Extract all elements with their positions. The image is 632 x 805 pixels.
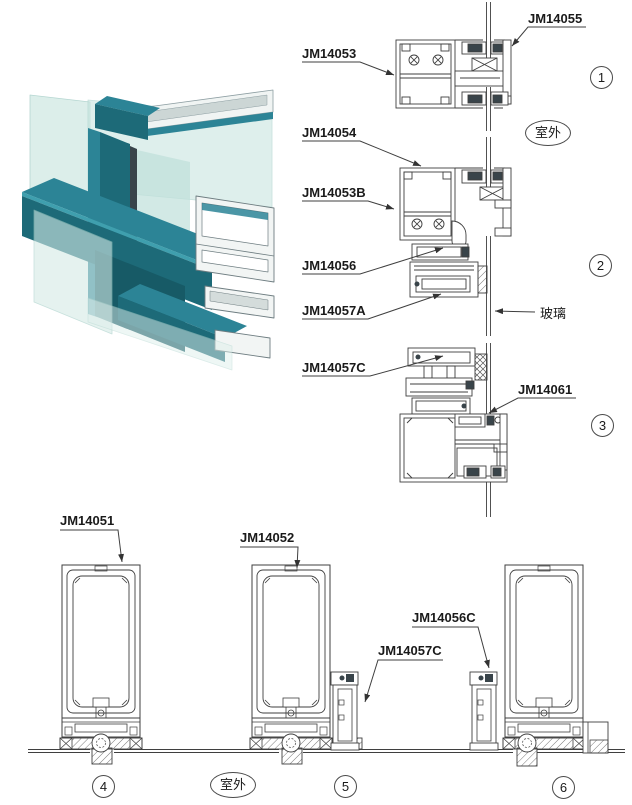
- callout-jm14057a: JM14057A: [302, 304, 366, 318]
- callout-jm14061: JM14061: [518, 383, 572, 397]
- callout-jm14056: JM14056: [302, 259, 356, 273]
- drawing-canvas: JM14053 JM14055 JM14054 JM14053B JM14056…: [0, 0, 632, 805]
- callout-jm14055: JM14055: [528, 12, 582, 26]
- callout-jm14056c: JM14056C: [412, 611, 476, 625]
- detail-marker-5: 5: [334, 775, 357, 798]
- detail-marker-6: 6: [552, 776, 575, 799]
- section-2-drawing: [400, 168, 511, 297]
- detail-marker-4: 4: [92, 775, 115, 798]
- outdoor-label-bottom: 室外: [210, 772, 256, 798]
- callout-jm14057c-bottom: JM14057C: [378, 644, 442, 658]
- callout-jm14053: JM14053: [302, 47, 356, 61]
- detail-marker-2: 2: [589, 254, 612, 277]
- outdoor-label-top: 室外: [525, 120, 571, 146]
- detail-marker-3: 3: [591, 414, 614, 437]
- isometric-view: [22, 90, 274, 370]
- section-4-drawing: [60, 565, 142, 764]
- callout-glass: 玻璃: [540, 303, 566, 322]
- callout-jm14054: JM14054: [302, 126, 356, 140]
- section-1-drawing: [396, 40, 511, 108]
- section-6-drawing: [470, 565, 608, 766]
- callout-jm14053b: JM14053B: [302, 186, 366, 200]
- callout-jm14052: JM14052: [240, 531, 294, 545]
- section-5-drawing: [250, 565, 362, 764]
- detail-marker-1: 1: [590, 66, 613, 89]
- callout-jm14057c-top: JM14057C: [302, 361, 366, 375]
- callout-jm14051: JM14051: [60, 514, 114, 528]
